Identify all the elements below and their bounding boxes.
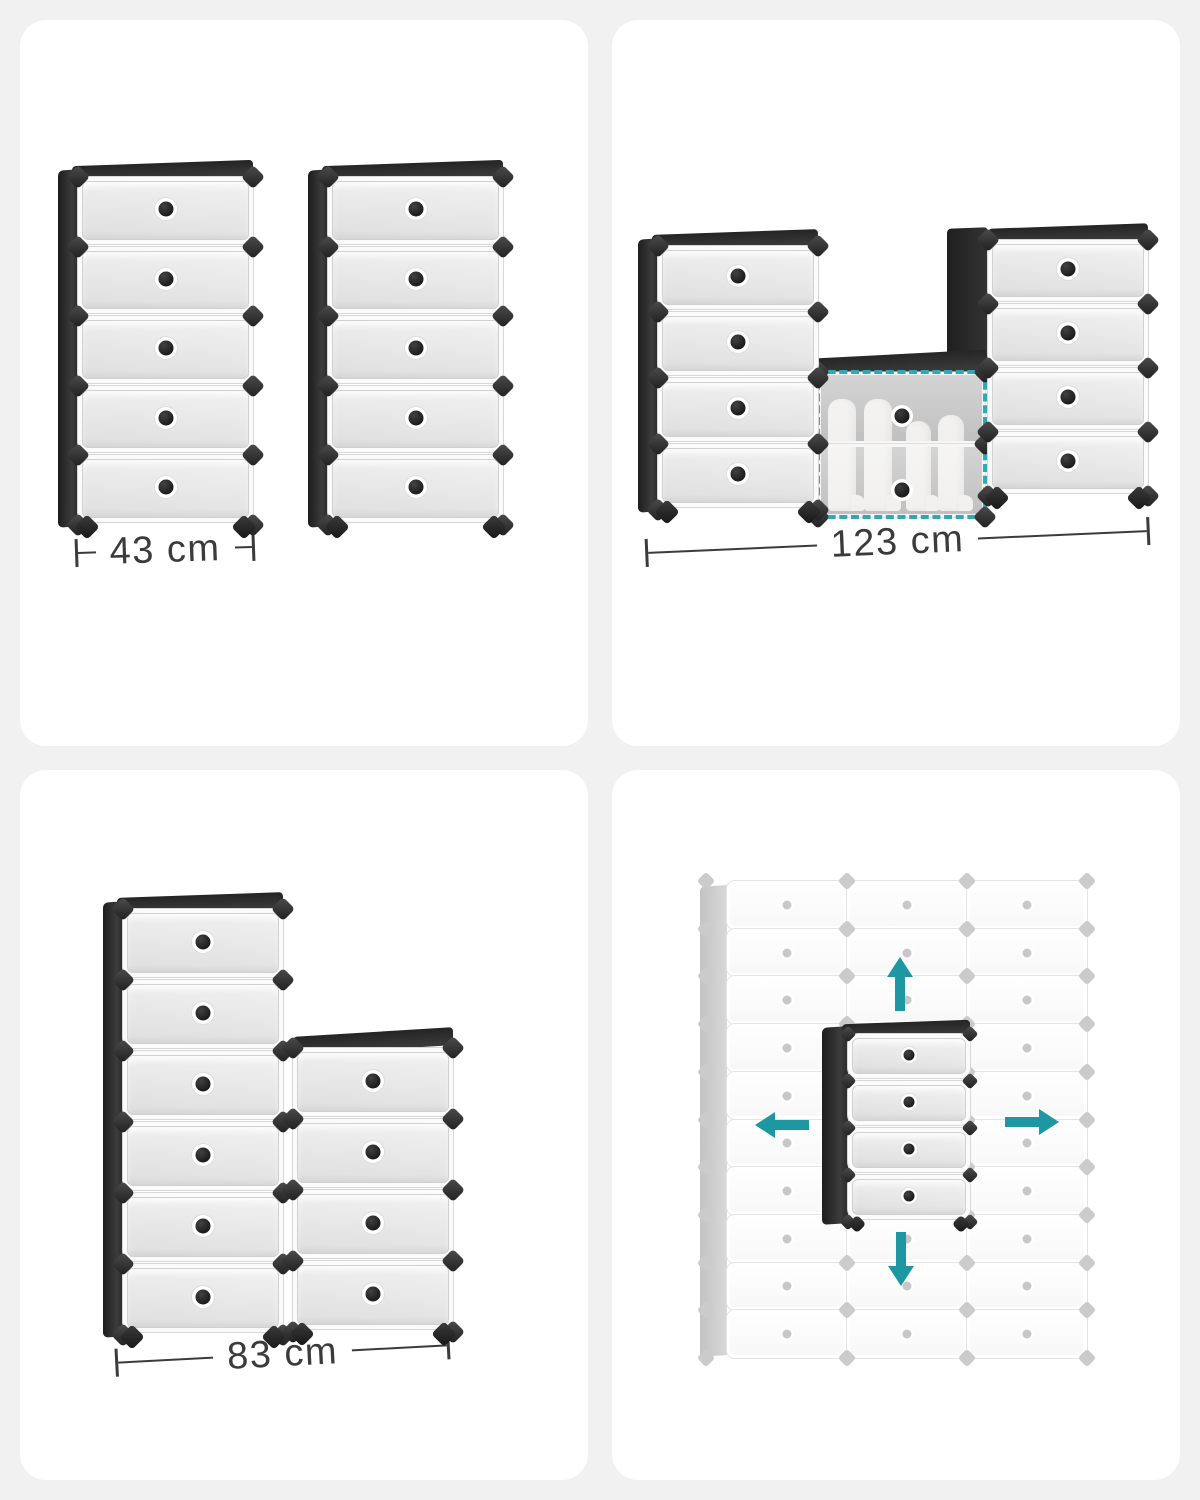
drawer-knob bbox=[366, 1073, 381, 1088]
dimension-label: 43 cm bbox=[109, 529, 221, 571]
drawer-knob bbox=[366, 1286, 381, 1301]
drawer-stack bbox=[658, 246, 818, 510]
door-knob bbox=[894, 409, 909, 424]
ghost-drawer bbox=[967, 1263, 1087, 1311]
drawer-front bbox=[123, 909, 283, 977]
panel-l-shape: 83 cm bbox=[20, 770, 588, 1480]
ghost-drawer-knob bbox=[783, 1187, 792, 1196]
drawer-stack bbox=[78, 177, 253, 525]
drawer-knob bbox=[408, 410, 423, 425]
translucent-door bbox=[818, 444, 985, 517]
drawer-knob bbox=[196, 1218, 211, 1233]
ghost-drawer bbox=[967, 881, 1087, 929]
drawer-knob bbox=[1061, 326, 1076, 341]
drawer-knob bbox=[196, 1076, 211, 1091]
drawer-knob bbox=[196, 1289, 211, 1304]
drawer-knob bbox=[196, 934, 211, 949]
drawer-knob bbox=[158, 480, 173, 495]
panel-expansion bbox=[612, 770, 1180, 1480]
drawer-front bbox=[658, 246, 818, 309]
dimension-line bbox=[234, 546, 252, 549]
ghost-drawer bbox=[727, 881, 847, 929]
drawer-knob bbox=[408, 271, 423, 286]
drawer-knob bbox=[158, 410, 173, 425]
ghost-drawer bbox=[967, 1024, 1087, 1072]
expand-arrow-left-icon bbox=[755, 1112, 809, 1138]
ghost-drawer bbox=[967, 1215, 1087, 1263]
drawer-stack bbox=[123, 909, 283, 1335]
storage-unit bbox=[988, 226, 1148, 496]
ghost-drawer-knob bbox=[783, 900, 792, 909]
drawer-knob bbox=[731, 269, 746, 284]
ghost-drawer-knob bbox=[1023, 1234, 1032, 1243]
drawer-front bbox=[78, 316, 253, 383]
drawer-front bbox=[78, 177, 253, 244]
ghost-drawer-knob bbox=[1023, 900, 1032, 909]
ghost-drawer-knob bbox=[783, 1139, 792, 1148]
ghost-drawer bbox=[967, 1310, 1087, 1358]
storage-unit bbox=[58, 163, 253, 525]
drawer-front bbox=[848, 1034, 970, 1078]
storage-unit bbox=[103, 895, 283, 1335]
ghost-drawer-knob bbox=[783, 1234, 792, 1243]
drawer-front bbox=[848, 1128, 970, 1172]
ghost-drawer-knob bbox=[1023, 1187, 1032, 1196]
ghost-drawer-knob bbox=[1023, 1330, 1032, 1339]
drawer-knob bbox=[196, 1147, 211, 1162]
drawer-knob bbox=[904, 1191, 915, 1202]
drawer-knob bbox=[158, 341, 173, 356]
cabinet-side-panel bbox=[58, 169, 78, 527]
ghost-drawer bbox=[847, 881, 967, 929]
drawer-knob bbox=[408, 202, 423, 217]
drawer-stack bbox=[293, 1048, 453, 1332]
drawer-front bbox=[123, 1264, 283, 1332]
drawer-front bbox=[328, 247, 503, 314]
drawer-knob bbox=[408, 480, 423, 495]
ghost-drawer bbox=[727, 976, 847, 1024]
ghost-drawer-knob bbox=[1023, 1282, 1032, 1291]
drawer-front bbox=[658, 444, 818, 507]
drawer-knob bbox=[366, 1215, 381, 1230]
drawer-front bbox=[293, 1048, 453, 1116]
ghost-drawer-knob bbox=[903, 948, 912, 957]
ghost-drawer-knob bbox=[1023, 1091, 1032, 1100]
cabinet-side-panel bbox=[308, 169, 328, 527]
dimension-tick bbox=[251, 533, 255, 561]
panel-two-towers: 43 cm bbox=[20, 20, 588, 746]
drawer-front bbox=[328, 177, 503, 244]
drawer-front bbox=[293, 1119, 453, 1187]
ghost-drawer-knob bbox=[783, 1043, 792, 1052]
drawer-stack bbox=[328, 177, 503, 525]
drawer-front bbox=[658, 378, 818, 441]
drawer-front bbox=[293, 1190, 453, 1258]
dimension-line bbox=[978, 530, 1147, 540]
storage-unit bbox=[293, 1032, 453, 1332]
drawer-front bbox=[848, 1081, 970, 1125]
drawer-front bbox=[123, 1122, 283, 1190]
expand-arrow-right-icon bbox=[1005, 1109, 1059, 1135]
door-knob bbox=[894, 483, 909, 498]
drawer-knob bbox=[904, 1144, 915, 1155]
ghost-drawer-knob bbox=[903, 900, 912, 909]
drawer-front bbox=[658, 312, 818, 375]
drawer-front bbox=[988, 240, 1148, 301]
storage-unit bbox=[638, 232, 818, 510]
drawer-front bbox=[328, 316, 503, 383]
drawer-front bbox=[328, 455, 503, 522]
drawer-knob bbox=[196, 1005, 211, 1020]
dimension-line bbox=[118, 1356, 213, 1363]
drawer-front bbox=[848, 1175, 970, 1219]
drawer-front bbox=[78, 386, 253, 453]
dimension-tick bbox=[1146, 517, 1150, 545]
drawer-front bbox=[988, 304, 1148, 365]
ghost-drawer-knob bbox=[1023, 996, 1032, 1005]
dimension-123cm: 123 cm bbox=[644, 509, 1150, 575]
dimension-line bbox=[648, 544, 817, 554]
dimension-line bbox=[352, 1344, 447, 1351]
drawer-knob bbox=[731, 401, 746, 416]
drawer-front bbox=[988, 432, 1148, 493]
drawer-knob bbox=[158, 271, 173, 286]
drawer-front bbox=[293, 1261, 453, 1329]
drawer-knob bbox=[731, 467, 746, 482]
drawer-front bbox=[78, 247, 253, 314]
dimension-label: 123 cm bbox=[830, 520, 965, 564]
ghost-drawer-knob bbox=[1023, 1043, 1032, 1052]
ghost-drawer-knob bbox=[1023, 948, 1032, 957]
drawer-front bbox=[123, 1193, 283, 1261]
panel-u-shape: 123 cm bbox=[612, 20, 1180, 746]
expand-arrow-up-icon bbox=[887, 957, 913, 1011]
ghost-drawer-knob bbox=[783, 1091, 792, 1100]
drawer-knob bbox=[904, 1097, 915, 1108]
ghost-drawer bbox=[967, 1167, 1087, 1215]
ghost-drawer bbox=[847, 1310, 967, 1358]
drawer-knob bbox=[1061, 390, 1076, 405]
drawer-stack bbox=[848, 1034, 970, 1222]
drawer-knob bbox=[366, 1144, 381, 1159]
dimension-43cm: 43 cm bbox=[74, 525, 255, 575]
storage-unit bbox=[822, 1022, 970, 1222]
ghost-drawer-knob bbox=[783, 1330, 792, 1339]
ghost-drawer bbox=[727, 1310, 847, 1358]
ghost-drawer bbox=[967, 976, 1087, 1024]
drawer-knob bbox=[904, 1050, 915, 1061]
ghost-drawer-knob bbox=[1023, 1139, 1032, 1148]
drawer-front bbox=[328, 386, 503, 453]
drawer-knob bbox=[1061, 454, 1076, 469]
dimension-line bbox=[78, 551, 96, 554]
ghost-drawer-knob bbox=[903, 1330, 912, 1339]
drawer-stack bbox=[988, 240, 1148, 496]
drawer-front bbox=[78, 455, 253, 522]
drawer-front bbox=[123, 1051, 283, 1119]
drawer-knob bbox=[408, 341, 423, 356]
expand-arrow-down-icon bbox=[888, 1232, 914, 1286]
ghost-drawer bbox=[727, 1263, 847, 1311]
highlighted-open-cube bbox=[818, 372, 985, 517]
storage-unit bbox=[308, 163, 503, 525]
drawer-knob bbox=[1061, 262, 1076, 277]
drawer-front bbox=[123, 980, 283, 1048]
drawer-front bbox=[988, 368, 1148, 429]
drawer-knob bbox=[731, 335, 746, 350]
ghost-drawer-knob bbox=[783, 948, 792, 957]
ghost-drawer bbox=[967, 929, 1087, 977]
ghost-drawer-knob bbox=[783, 1282, 792, 1291]
ghost-drawer-knob bbox=[783, 996, 792, 1005]
drawer-knob bbox=[158, 202, 173, 217]
ghost-drawer bbox=[727, 929, 847, 977]
